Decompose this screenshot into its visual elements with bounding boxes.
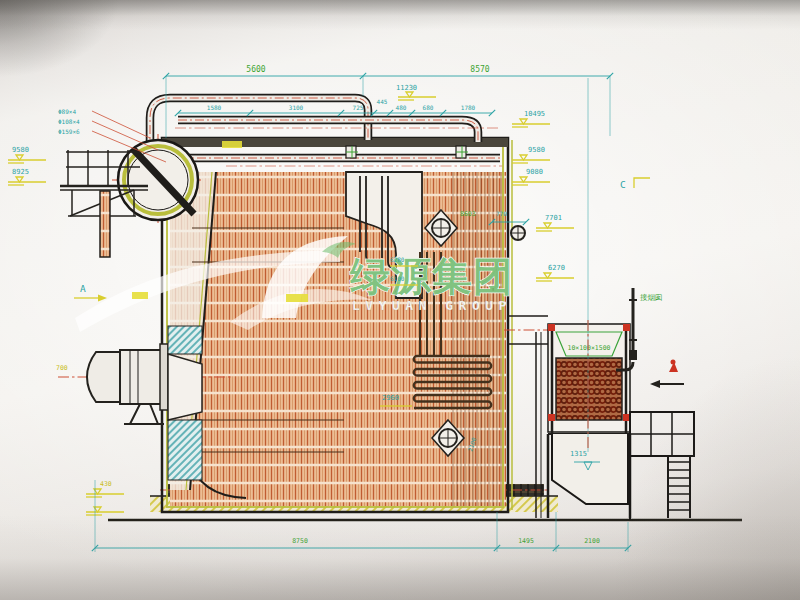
elevation-markers-left: 9580 8925 (8, 146, 46, 185)
front-wall-refractory (168, 420, 202, 480)
upper-headers (150, 98, 500, 168)
label-6100: 6100 (390, 275, 405, 282)
label-770: 770 (496, 210, 507, 217)
dim-chain-6: 1780 (461, 104, 476, 111)
dim-1495: 1495 (518, 537, 534, 545)
label-8603: 8603 (460, 210, 476, 218)
downcomer-pipe (100, 191, 110, 257)
economizer-coil-block (556, 358, 622, 420)
dim-chain-4: 480 (396, 104, 407, 111)
section-marker-a: A (80, 283, 86, 294)
economizer: 10×100×1500 (548, 324, 630, 434)
yellow-tag (286, 294, 308, 302)
label-2960: 2960 (382, 394, 399, 402)
label-1315: 1315 (570, 450, 587, 458)
elev-9080: 9080 (526, 168, 543, 176)
dim-chain-2: 725 (353, 104, 364, 111)
elev-left-9580: 9580 (12, 146, 29, 154)
dim-8570: 8570 (470, 65, 489, 74)
feeder-cap (87, 352, 120, 402)
dim-2100: 2100 (584, 537, 600, 545)
dim-chain-5: 680 (423, 104, 434, 111)
pipe-spec-0: Φ89×4 (58, 108, 76, 115)
manhole-rear (511, 226, 525, 240)
elev-9580: 9580 (528, 146, 545, 154)
furnace-body (170, 172, 506, 506)
yellow-tag (132, 292, 148, 299)
access-platform (630, 412, 694, 456)
dim-chain-0: 1580 (207, 104, 222, 111)
elev-10495: 10495 (524, 110, 545, 118)
elev-6270: 6270 (548, 264, 565, 272)
front-wall-refractory (168, 326, 202, 354)
flue-note-label: 接烟囱 (640, 293, 663, 302)
steam-drum (112, 134, 204, 226)
elev-7701: 7701 (545, 214, 562, 222)
label-700: 700 (56, 364, 68, 372)
red-marker (671, 360, 676, 365)
dim-chain-3: 445 (377, 98, 388, 105)
dim-chain-1: 3100 (289, 104, 304, 111)
dim-5600: 5600 (246, 65, 265, 74)
pipe-spec-1: Φ108×4 (58, 118, 80, 125)
pipe-spec-2: Φ159×6 (58, 128, 80, 135)
elev-11230: 11230 (396, 84, 417, 92)
watermark-cn-text: 绿源集团 (349, 253, 514, 299)
photographed-blueprint: 10×100×1500 接烟囱 绿源集团 LVYUAN GROUP 5600 8… (0, 0, 800, 600)
feed-chute (168, 354, 202, 420)
feeder-body (120, 350, 164, 404)
section-marker-c: C (620, 179, 626, 190)
dim-8750: 8750 (292, 537, 308, 545)
boiler-elevation-drawing: 10×100×1500 接烟囱 绿源集团 LVYUAN GROUP 5600 8… (0, 0, 800, 600)
economizer-spec-label: 10×100×1500 (567, 344, 610, 352)
label-6280: 6280 (390, 256, 405, 263)
watermark-en-text: LVYUAN GROUP (352, 298, 512, 313)
economizer-hopper (548, 78, 630, 518)
label-430: 430 (100, 480, 112, 488)
elev-left-8925: 8925 (12, 168, 29, 176)
ladder (630, 456, 690, 520)
yellow-tag (222, 141, 242, 148)
